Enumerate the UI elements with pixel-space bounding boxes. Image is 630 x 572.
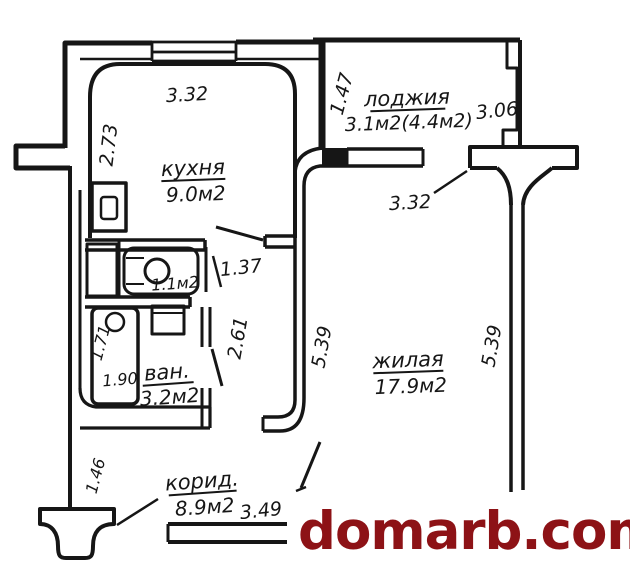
room-kitchen-name: кухня xyxy=(161,155,226,181)
stove xyxy=(92,183,126,231)
loggia-living-window-caps xyxy=(347,149,423,166)
dim-loggia-left: 1.47 xyxy=(326,71,358,118)
column-bottom-left xyxy=(40,509,114,558)
pier-right-bar xyxy=(470,147,577,168)
watermark: domarb.com xyxy=(298,501,630,562)
dim-kitchen-left: 2.73 xyxy=(96,123,123,168)
loggia-living-window xyxy=(347,149,423,166)
floorplan-image: 3.32 2.73 кухня 9.0м2 1.47 лоджия 3.1м2(… xyxy=(0,0,630,572)
room-living-area: 17.9м2 xyxy=(374,373,447,400)
loggia-right-inner-steps xyxy=(503,42,517,147)
kitchen-bottom-stub xyxy=(265,236,295,247)
stove-burner xyxy=(101,197,117,219)
dim-corridor-width: 3.49 xyxy=(239,498,283,524)
corridor-living-divider-right xyxy=(263,166,347,431)
dim-bath-width: 1.90 xyxy=(101,368,138,390)
leader-living-top xyxy=(434,171,467,193)
loggia-sill-solid xyxy=(322,148,348,166)
dim-hall-height: 2.61 xyxy=(223,315,252,360)
bath-right-wall-upper xyxy=(202,307,210,347)
bath-door-leaf xyxy=(212,349,222,386)
room-loggia-area: 3.1м2(4.4м2) xyxy=(344,110,473,136)
dim-loggia-right: 3.06 xyxy=(475,98,519,124)
toilet-tank-lines xyxy=(126,258,144,284)
living-door-leaf xyxy=(301,442,320,488)
dim-living-right: 5.39 xyxy=(477,323,506,368)
dim-toilet-door: 1.37 xyxy=(219,255,263,281)
toilet-closet xyxy=(87,244,117,296)
wall-left-bump xyxy=(16,146,70,168)
room-kitchen-area: 9.0м2 xyxy=(166,181,226,207)
sink xyxy=(152,306,184,334)
leader-corridor xyxy=(117,499,158,525)
room-loggia-name: лоджия xyxy=(363,85,451,112)
dim-living-top: 3.32 xyxy=(388,191,431,215)
living-right-wall xyxy=(511,205,523,492)
room-bath-area: 3.2м2 xyxy=(139,383,200,411)
dim-corridor-left: 1.46 xyxy=(82,456,110,495)
dim-living-left: 5.39 xyxy=(307,324,336,369)
corridor-living-divider-left xyxy=(263,148,322,417)
room-bath-name: ван. xyxy=(143,358,190,385)
dim-kitchen-top: 3.32 xyxy=(165,83,208,107)
room-living-name: жилая xyxy=(371,347,444,374)
pier-right-curves xyxy=(497,168,552,205)
kitchen-door-leaf xyxy=(216,227,263,240)
floorplan-svg: 3.32 2.73 кухня 9.0м2 1.47 лоджия 3.1м2(… xyxy=(0,0,630,572)
room-corridor-area: 8.9м2 xyxy=(174,493,235,521)
kitchen-window xyxy=(152,42,236,61)
room-toilet-area: 1.1м2 xyxy=(151,272,200,294)
corridor-window xyxy=(168,524,287,542)
